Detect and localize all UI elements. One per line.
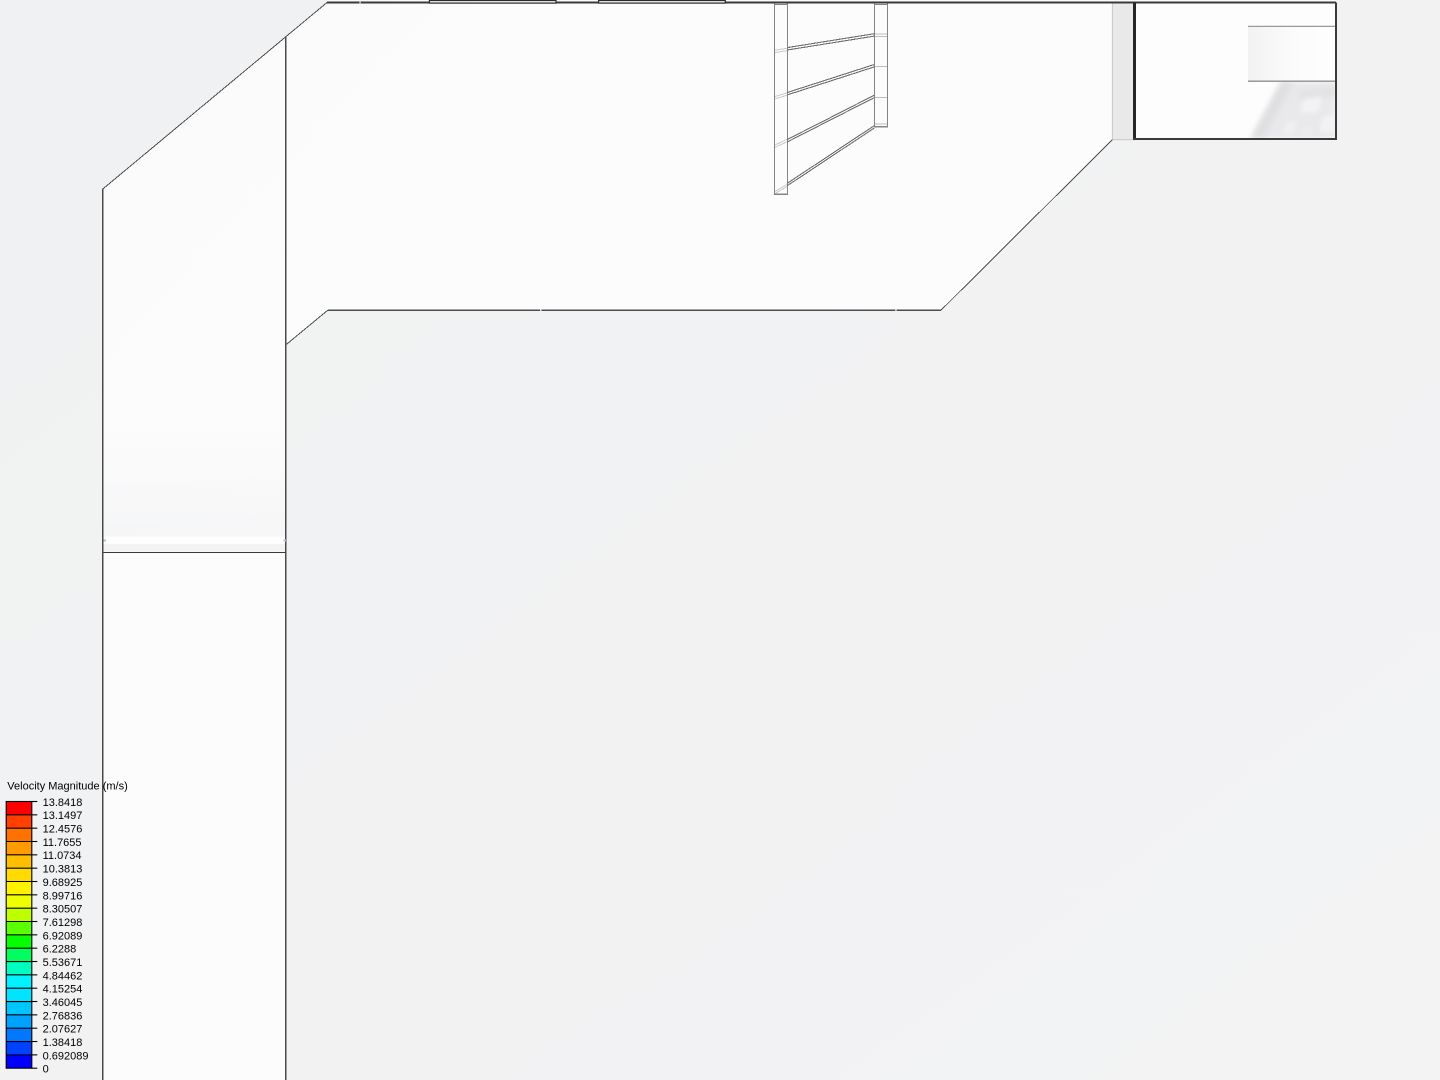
svg-text:10.3813: 10.3813 bbox=[43, 864, 83, 876]
svg-text:11.7655: 11.7655 bbox=[43, 837, 82, 849]
svg-text:Velocity Magnitude (m/s): Velocity Magnitude (m/s) bbox=[7, 780, 127, 792]
svg-text:8.99716: 8.99716 bbox=[43, 890, 83, 902]
svg-text:5.53671: 5.53671 bbox=[43, 957, 83, 969]
svg-text:8.30507: 8.30507 bbox=[43, 904, 83, 916]
svg-text:3.46045: 3.46045 bbox=[43, 997, 83, 1009]
svg-text:4.15254: 4.15254 bbox=[43, 984, 83, 996]
svg-text:13.1497: 13.1497 bbox=[43, 810, 83, 822]
svg-text:6.92089: 6.92089 bbox=[43, 930, 83, 942]
svg-text:11.0734: 11.0734 bbox=[43, 850, 82, 862]
svg-text:1.38418: 1.38418 bbox=[43, 1037, 83, 1049]
svg-text:6.2288: 6.2288 bbox=[43, 944, 77, 956]
svg-text:13.8418: 13.8418 bbox=[43, 797, 83, 809]
svg-text:2.07627: 2.07627 bbox=[43, 1024, 83, 1036]
svg-text:2.76836: 2.76836 bbox=[43, 1010, 83, 1022]
svg-text:7.61298: 7.61298 bbox=[43, 917, 83, 929]
svg-text:4.84462: 4.84462 bbox=[43, 970, 83, 982]
svg-text:12.4576: 12.4576 bbox=[43, 824, 83, 836]
svg-text:9.68925: 9.68925 bbox=[43, 877, 83, 889]
svg-text:0.692089: 0.692089 bbox=[43, 1050, 89, 1062]
svg-text:0: 0 bbox=[43, 1064, 49, 1076]
